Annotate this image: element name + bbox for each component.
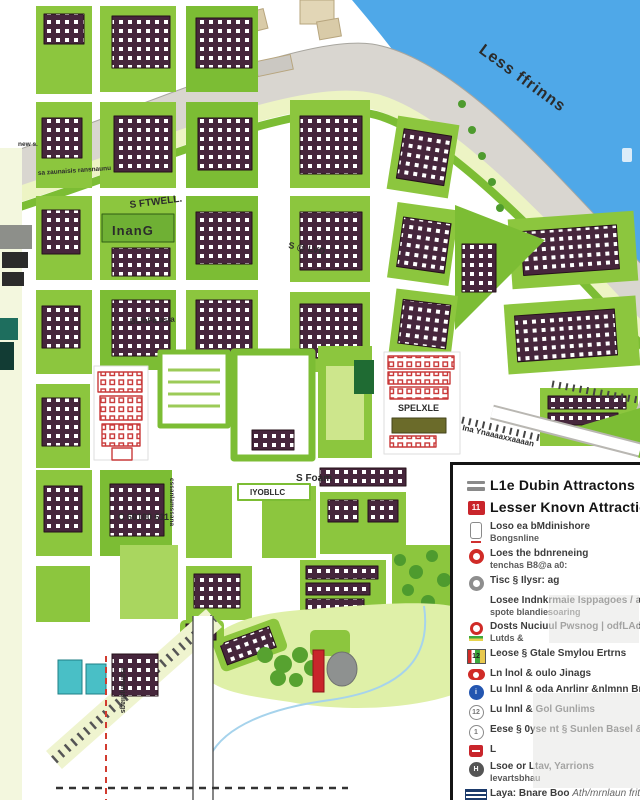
thick-lines-icon: [462, 480, 490, 491]
river-marker-icon: [622, 148, 632, 162]
gray-circle-icon: [469, 576, 484, 591]
legend-row-sub-title: 11 Lesser Knovn Attractions: [462, 499, 640, 515]
red-oval-icon: [468, 669, 485, 680]
color-square-icon: 12: [467, 649, 486, 664]
legend-item[interactable]: Loes the bdnreneingtenchas B8@a a0:: [462, 548, 640, 571]
dark-circle-icon: H: [469, 762, 484, 777]
legend-item[interactable]: Tisc § Ilysr: ag: [462, 575, 640, 591]
red-bag-icon: [469, 745, 483, 757]
street-label: S Foam: [296, 473, 332, 484]
park-label: InanG: [112, 223, 154, 238]
legend-item[interactable]: Loso ea bMdinishoreBongsnline: [462, 521, 640, 544]
building-label: IYOBLLC: [250, 488, 285, 497]
red-circle-green-bar-icon: [469, 622, 483, 641]
faded-map-area: [533, 693, 640, 788]
street-label: C 60100 611: [118, 512, 169, 522]
phone-icon: [470, 522, 482, 539]
outline-circle-icon: 12: [469, 705, 484, 720]
legend-item[interactable]: Laya: Bnare Boo Ath/mrnlaun frit: [462, 788, 640, 800]
legend-item[interactable]: 12 Leose § Gtale Smylou Ertrns: [462, 648, 640, 664]
legend-title: L1e Dubin Attractons: [490, 477, 635, 493]
red-badge-icon: 11: [468, 501, 485, 515]
navy-stripes-icon: [465, 789, 487, 800]
street-label: cssanlamssana: [168, 478, 175, 526]
legend-panel: L1e Dubin Attractons 11 Lesser Knovn Att…: [450, 462, 640, 800]
legend-row-main-title: L1e Dubin Attractons: [462, 477, 640, 493]
attraction-label: SPELXLE: [398, 403, 439, 413]
red-circle-icon: [469, 549, 484, 564]
street-label: new s.: [18, 141, 38, 148]
street-label: Istlrnmjsliags: [119, 668, 126, 713]
faded-map-area: [549, 595, 639, 643]
legend-subtitle: Lesser Knovn Attractions: [490, 499, 640, 515]
pond: [327, 652, 357, 686]
legend-item[interactable]: Ln lnol & oulo Jinags: [462, 668, 640, 680]
dublin-map-page: Less ffrinns S FTWELL. InanG S @ LVD BLI…: [0, 0, 640, 800]
red-sign: [313, 650, 324, 692]
outline-circle-icon: 1: [469, 725, 484, 740]
red-attraction-block-left: [94, 366, 148, 460]
blue-circle-icon: i: [469, 685, 484, 700]
